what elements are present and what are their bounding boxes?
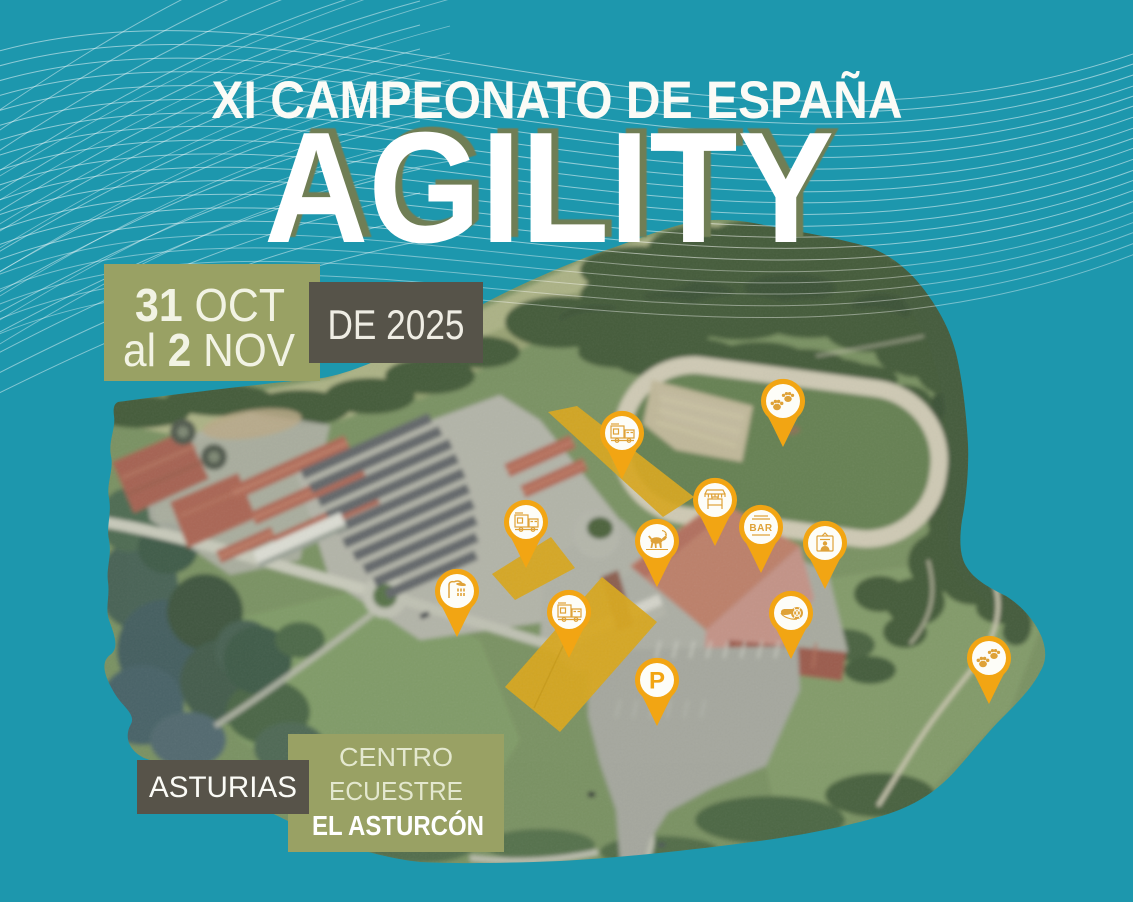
- svg-text:ECUESTRE: ECUESTRE: [329, 776, 463, 806]
- svg-text:EL ASTURCÓN: EL ASTURCÓN: [312, 810, 484, 841]
- svg-text:AGILITY: AGILITY: [264, 100, 834, 276]
- svg-text:al 2 NOV: al 2 NOV: [123, 324, 295, 376]
- svg-text:P: P: [649, 668, 665, 695]
- svg-text:ASTURIAS: ASTURIAS: [149, 771, 297, 804]
- svg-text:CENTRO: CENTRO: [339, 742, 453, 772]
- svg-text:BAR: BAR: [749, 523, 772, 534]
- svg-text:DE 2025: DE 2025: [328, 301, 465, 348]
